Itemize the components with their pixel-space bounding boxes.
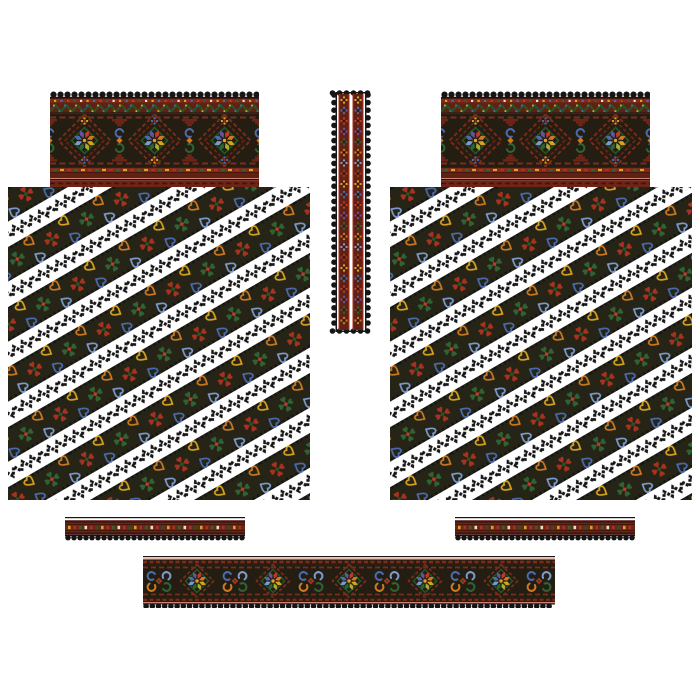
shoulder-band-embroidery: [50, 90, 259, 187]
embroidery-pattern-sheet: [0, 0, 700, 700]
left-sleeve-panel: [8, 187, 310, 500]
left-shoulder-band: [50, 90, 259, 187]
right-shoulder-band: [441, 90, 650, 187]
neck-strip: [329, 88, 373, 336]
collar-band-embroidery: [143, 556, 555, 608]
right-sleeve-panel: [390, 187, 692, 500]
collar-band: [143, 556, 555, 608]
right-cuff-strip: [455, 517, 635, 541]
cuff-strip-embroidery: [455, 517, 635, 541]
diagonal-stripe-panel: [8, 187, 310, 500]
shoulder-band-embroidery: [441, 90, 650, 187]
neck-strip-embroidery: [329, 88, 373, 336]
cuff-strip-embroidery: [65, 517, 245, 541]
left-cuff-strip: [65, 517, 245, 541]
diagonal-stripe-panel: [390, 187, 692, 500]
